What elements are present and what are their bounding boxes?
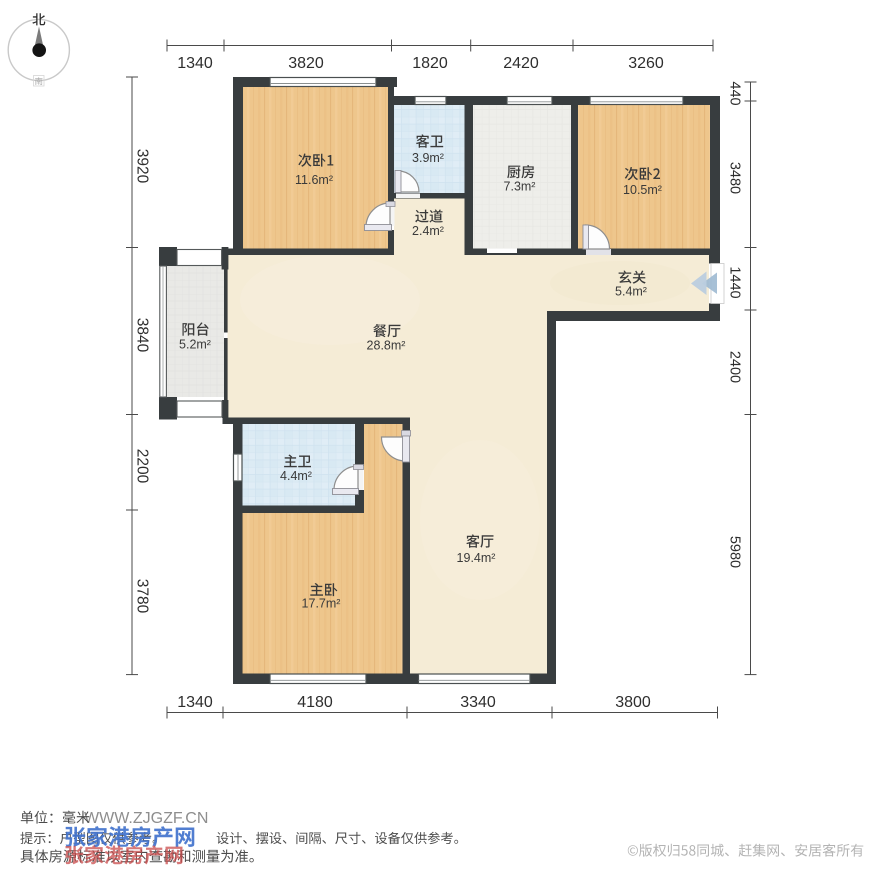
svg-text:1340: 1340 — [177, 694, 213, 711]
svg-text:4180: 4180 — [297, 694, 333, 711]
svg-text:3340: 3340 — [460, 694, 496, 711]
svg-text:1440: 1440 — [727, 266, 743, 298]
svg-text:440: 440 — [727, 81, 743, 105]
svg-text:5980: 5980 — [727, 536, 743, 568]
svg-text:5.4m²: 5.4m² — [615, 285, 647, 299]
svg-text:3480: 3480 — [727, 162, 743, 194]
svg-text:3800: 3800 — [615, 694, 651, 711]
svg-text:3840: 3840 — [134, 318, 151, 353]
svg-text:1340: 1340 — [177, 55, 213, 72]
svg-text:11.6m²: 11.6m² — [295, 173, 333, 187]
svg-text:2.4m²: 2.4m² — [412, 224, 444, 238]
svg-text:5.2m²: 5.2m² — [179, 338, 211, 352]
svg-text:17.7m²: 17.7m² — [302, 597, 341, 611]
svg-text:10.5m²: 10.5m² — [623, 183, 662, 197]
svg-text:3260: 3260 — [628, 55, 664, 72]
svg-text:3780: 3780 — [134, 579, 151, 614]
svg-text:WWW.ZJGZF.CN: WWW.ZJGZF.CN — [84, 810, 208, 827]
svg-text:2400: 2400 — [727, 351, 743, 383]
svg-text:19.4m²: 19.4m² — [457, 551, 496, 565]
svg-text:3.9m²: 3.9m² — [412, 151, 444, 165]
svg-text:2200: 2200 — [134, 449, 151, 484]
svg-text:3920: 3920 — [134, 149, 151, 184]
svg-text:2420: 2420 — [503, 55, 539, 72]
svg-text:1820: 1820 — [412, 55, 448, 72]
svg-text:3820: 3820 — [288, 55, 324, 72]
svg-text:7.3m²: 7.3m² — [504, 180, 536, 194]
svg-text:28.8m²: 28.8m² — [367, 339, 406, 353]
svg-text:4.4m²: 4.4m² — [280, 469, 312, 483]
